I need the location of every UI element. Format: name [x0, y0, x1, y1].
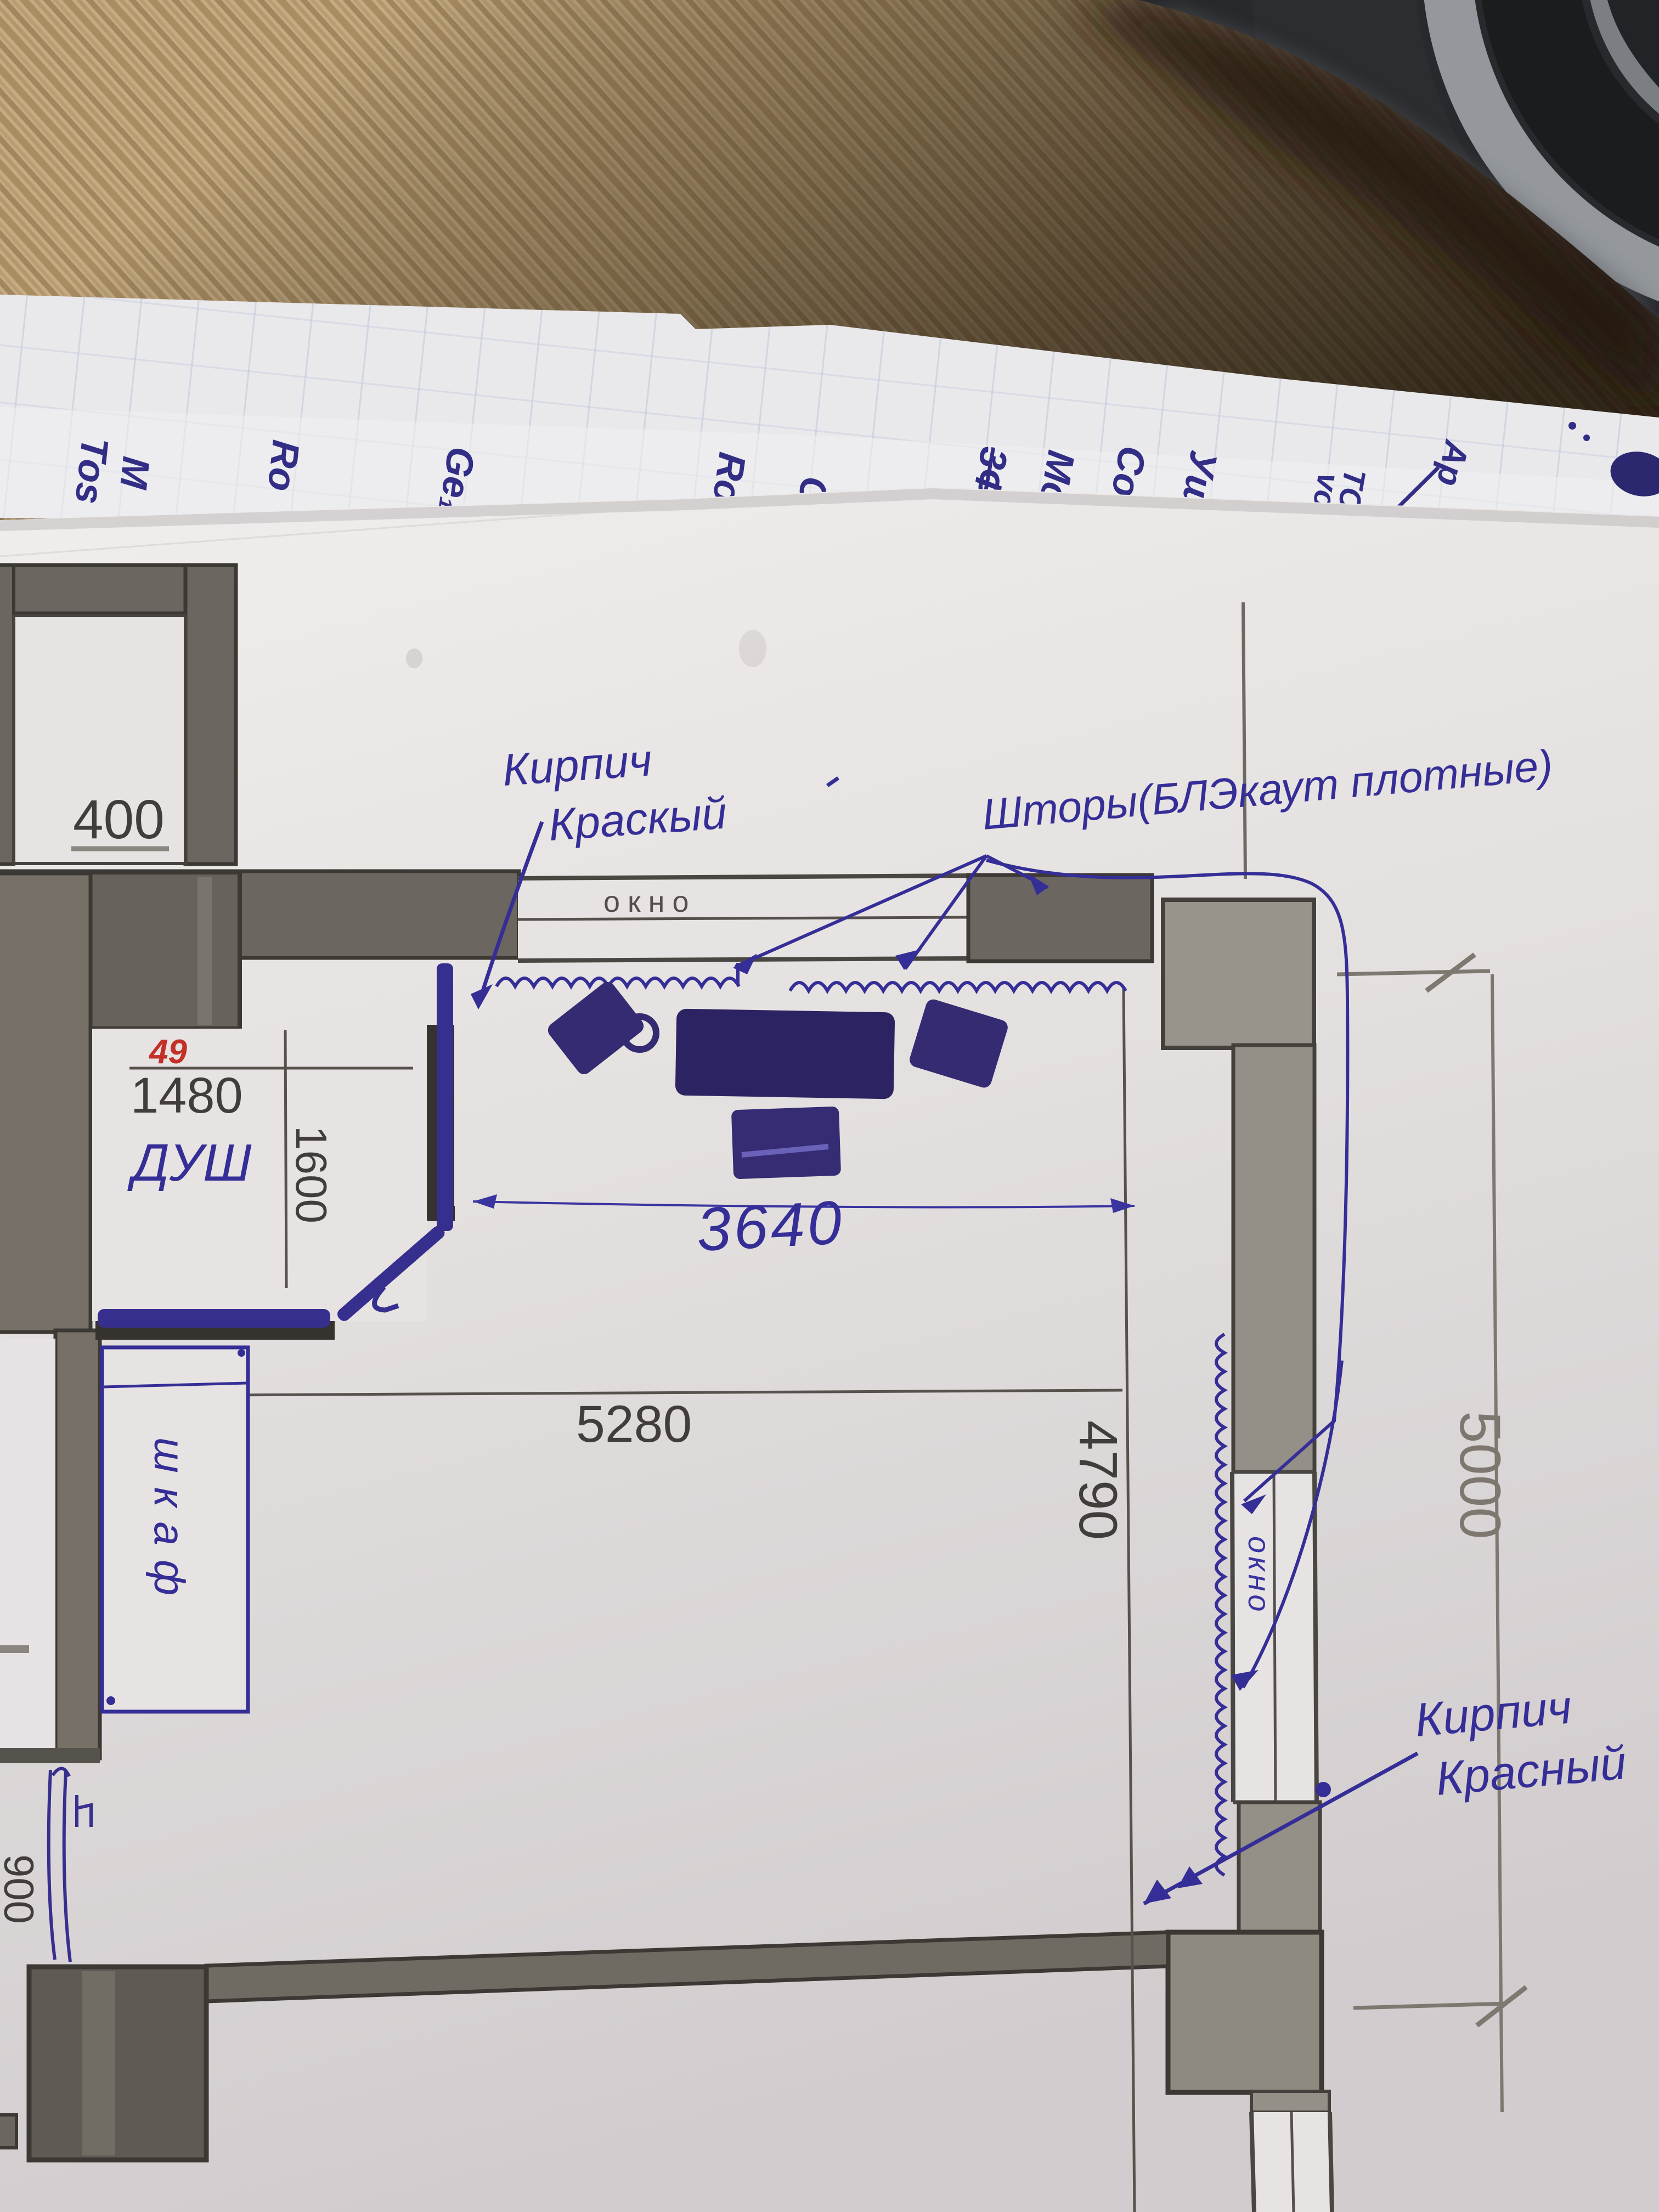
svg-text:3640: 3640	[695, 1188, 846, 1264]
svg-text:Tos: Tos	[67, 435, 116, 506]
svg-text:5000: 5000	[1448, 1411, 1512, 1539]
svg-text:400: 400	[73, 789, 165, 850]
svg-text:49: 49	[148, 1033, 187, 1071]
svg-text:1480: 1480	[131, 1068, 243, 1124]
svg-text:окно: окно	[603, 885, 697, 918]
svg-text:Кирпич: Кирпич	[501, 735, 653, 795]
svg-text:Ge₁: Ge₁	[432, 444, 483, 515]
svg-text:окно: окно	[1242, 1536, 1277, 1615]
svg-text:ДУШ: ДУШ	[127, 1133, 252, 1192]
svg-text:Ro: Ro	[259, 438, 307, 493]
svg-text:M: M	[112, 454, 158, 492]
svg-text:4790: 4790	[1068, 1420, 1128, 1540]
svg-text:5280: 5280	[576, 1395, 692, 1453]
svg-text:шкаф: шкаф	[145, 1437, 194, 1610]
svg-text:1600: 1600	[287, 1126, 336, 1223]
svg-text:900: 900	[0, 1854, 42, 1924]
